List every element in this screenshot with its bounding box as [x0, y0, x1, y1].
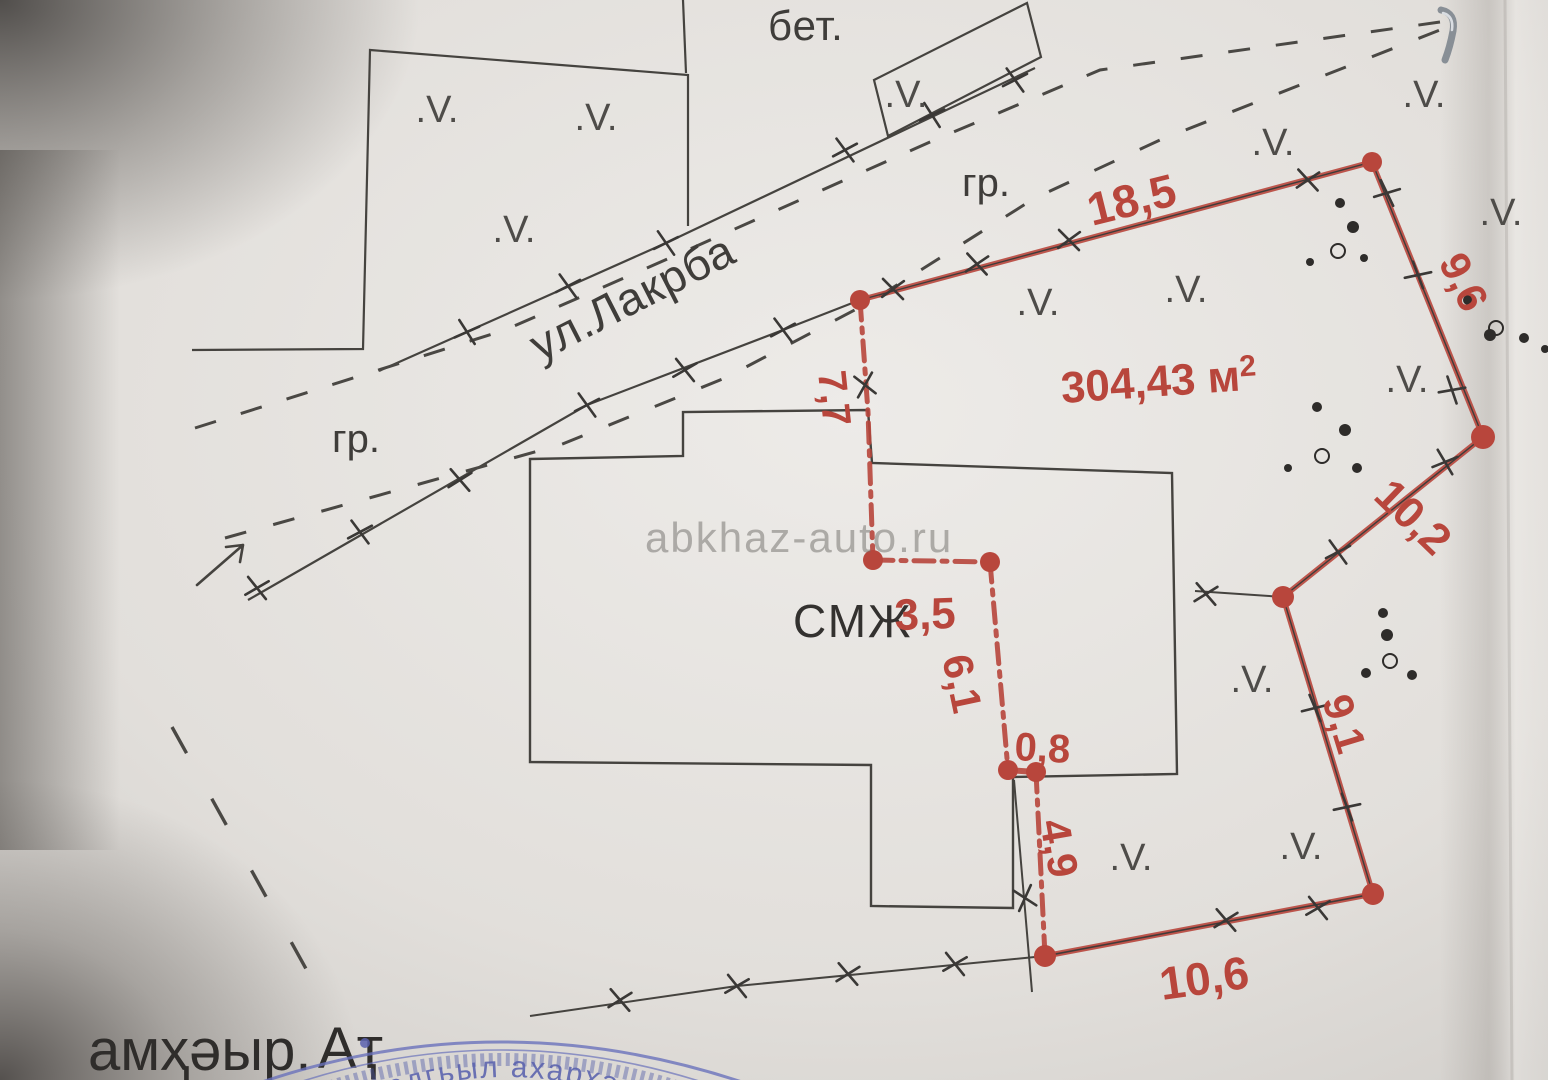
site-plan-drawing: .V.: [0, 0, 1548, 1080]
stamp-ink-dot: [360, 1038, 370, 1048]
site-plan-photo: .V.: [0, 0, 1548, 1080]
dim-offset: 0,8: [1014, 725, 1072, 772]
dim-notch: 3,5: [894, 589, 957, 640]
boundary-label-left: гр.: [332, 417, 380, 461]
boundary-label-top: гр.: [962, 161, 1010, 205]
watermark: abkhaz-auto.ru: [645, 514, 953, 561]
left-edge-shadow: [0, 150, 120, 850]
surface-label: бет.: [768, 2, 844, 49]
dim-south-inner: 4,9: [1031, 815, 1087, 881]
page-fold-right: [1440, 0, 1548, 1080]
dim-west-upper: 7,7: [809, 368, 859, 428]
footer-word: амҳәыр.: [88, 1018, 311, 1080]
